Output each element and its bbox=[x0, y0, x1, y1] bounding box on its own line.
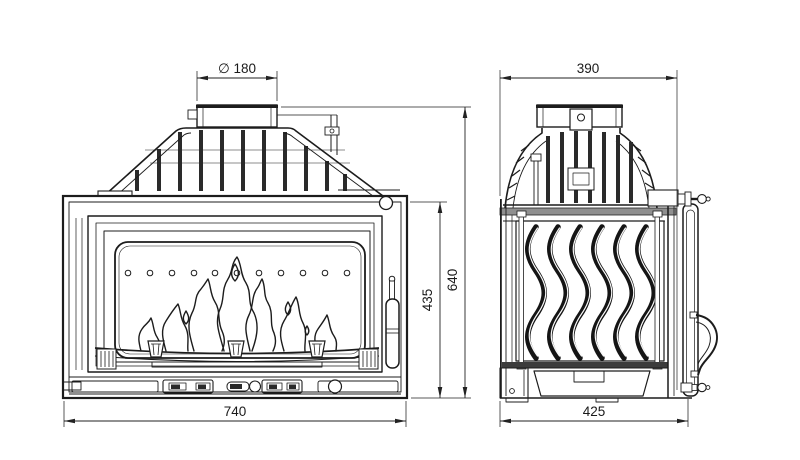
dim-label-front-width: 740 bbox=[224, 404, 247, 419]
front-view bbox=[63, 105, 407, 398]
tab-hole bbox=[578, 114, 585, 121]
flue-collar-front bbox=[188, 105, 278, 127]
side-base bbox=[500, 368, 692, 402]
dim-front-width: 740 bbox=[64, 401, 406, 427]
collar-tab bbox=[188, 110, 197, 119]
tie-rod-left bbox=[517, 211, 526, 369]
dim-flue-diameter: ∅ 180 bbox=[197, 61, 277, 101]
damper-knob bbox=[380, 197, 393, 210]
door-face bbox=[683, 204, 698, 396]
name-plate bbox=[568, 168, 594, 190]
dome-gills-left bbox=[507, 145, 529, 200]
shelf-end-block-left bbox=[97, 349, 116, 369]
thermostat-rod bbox=[534, 160, 538, 205]
dim-firebox-height: 435 bbox=[410, 202, 447, 398]
top-band bbox=[500, 208, 676, 215]
round-knob bbox=[329, 380, 342, 393]
fireplace-drawing: ∅ 180 390 640 435 bbox=[0, 0, 800, 460]
hinge-pin-bottom bbox=[681, 383, 710, 392]
drawer-recess bbox=[574, 371, 604, 382]
flue-collar-side bbox=[536, 105, 623, 130]
technical-drawing-canvas: ∅ 180 390 640 435 bbox=[0, 0, 800, 460]
bottom-band bbox=[502, 362, 668, 368]
dome-top-side bbox=[503, 128, 659, 208]
dim-label-flue-diameter: ∅ 180 bbox=[218, 61, 256, 76]
side-view bbox=[500, 105, 717, 402]
dim-label-side-bottom-depth: 425 bbox=[583, 404, 606, 419]
dim-label-side-top-width: 390 bbox=[577, 61, 600, 76]
ash-drawer bbox=[534, 371, 650, 396]
dim-side-bottom-depth: 425 bbox=[500, 399, 688, 427]
wavy-cast-pattern bbox=[528, 227, 656, 358]
damper-rod-fitting bbox=[648, 190, 710, 206]
shelf-end-block-right bbox=[359, 349, 378, 369]
dim-label-overall-height: 640 bbox=[445, 269, 460, 292]
fins-side bbox=[546, 131, 633, 203]
dim-label-firebox-height: 435 bbox=[420, 289, 435, 312]
